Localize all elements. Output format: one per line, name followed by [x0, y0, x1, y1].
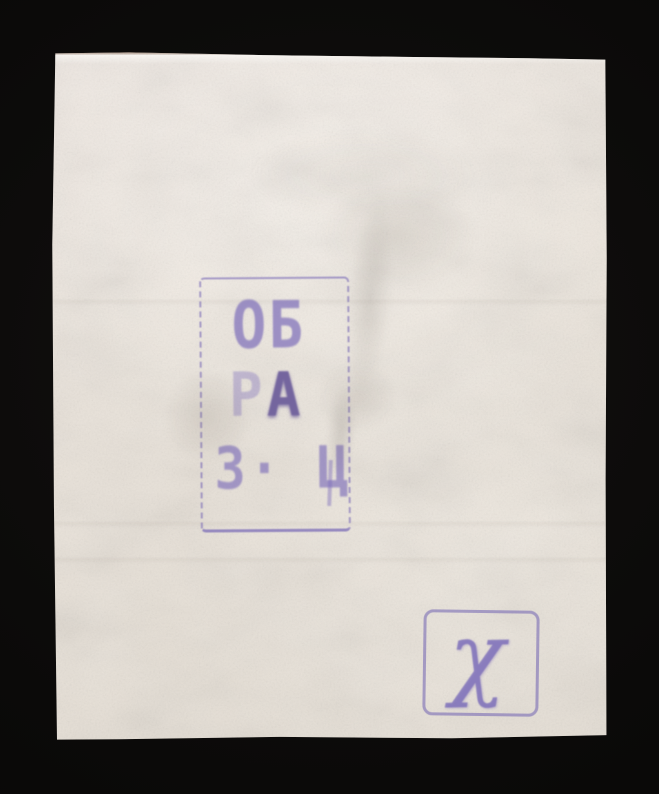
stamp-paper: ОБ РА З· Ц χ	[52, 52, 607, 740]
paper-crease-line	[52, 558, 607, 563]
handstamp-char-faint: Р	[229, 360, 267, 430]
x-handstamp-box: χ	[422, 609, 539, 717]
handstamp-text-line-1: ОБ	[231, 287, 305, 364]
stain-smudge-haze	[202, 110, 532, 240]
handstamp-text-line-2: РА	[229, 360, 305, 431]
photo-background: ОБ РА З· Ц χ	[0, 0, 659, 794]
x-handstamp-glyph: χ	[448, 610, 506, 703]
handstamp-char-blob: А	[266, 360, 304, 430]
